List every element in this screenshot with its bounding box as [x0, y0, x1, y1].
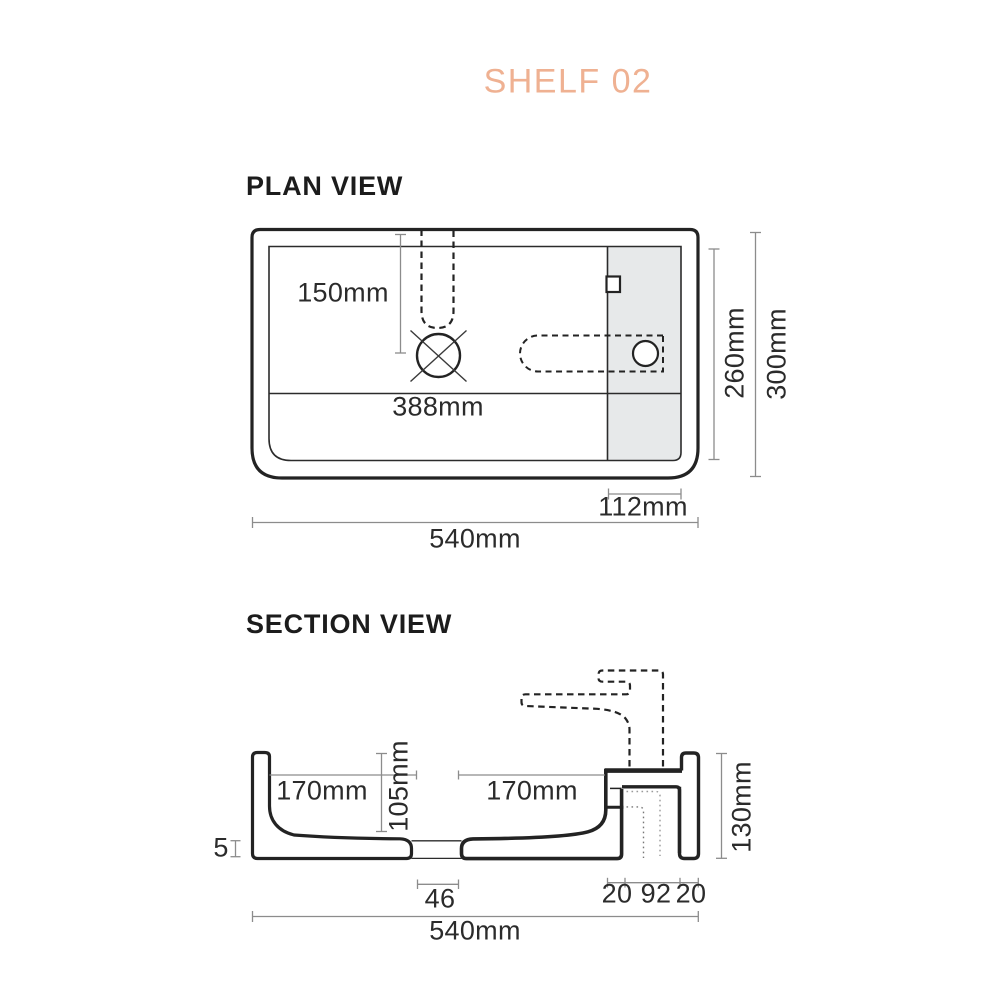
dim-label-130mm: 130mm [727, 761, 758, 853]
shelf-underside [622, 787, 680, 853]
dim-label-105mm: 105mm [384, 740, 415, 832]
dim-label-46: 46 [425, 884, 456, 915]
dim-label-5: 5 [213, 833, 228, 864]
plan-view-drawing [252, 230, 761, 529]
accessory-circle [633, 341, 658, 366]
dim-label-170mm-left: 170mm [276, 776, 368, 807]
technical-drawing-canvas [0, 0, 1000, 1000]
plan-overflow-square [607, 277, 621, 293]
section-right-leg [680, 753, 699, 859]
section-view-heading: SECTION VIEW [246, 609, 452, 640]
page-title: SHELF 02 [484, 63, 653, 102]
spec-sheet-page: SHELF 02 PLAN VIEW SECTION VIEW 150mm 38… [0, 0, 1000, 1000]
dim-label-300mm: 300mm [762, 308, 793, 400]
pipe-dotted-line-outer [627, 792, 661, 857]
dim-label-20-right: 20 [676, 879, 707, 910]
dim-label-540mm-plan: 540mm [429, 524, 521, 555]
dim-label-388mm: 388mm [392, 392, 484, 423]
dim-label-150mm: 150mm [297, 278, 389, 309]
dim-label-112mm: 112mm [598, 492, 688, 523]
dim-label-20-left: 20 [602, 879, 633, 910]
dim-label-170mm-right: 170mm [486, 776, 578, 807]
dim-label-540mm-section: 540mm [429, 916, 521, 947]
dim-label-260mm: 260mm [720, 307, 751, 399]
tap-dashed-outline-section [522, 671, 664, 767]
pipe-dotted-line-inner [627, 807, 644, 858]
plan-view-heading: PLAN VIEW [246, 171, 403, 202]
dim-label-92: 92 [641, 879, 672, 910]
